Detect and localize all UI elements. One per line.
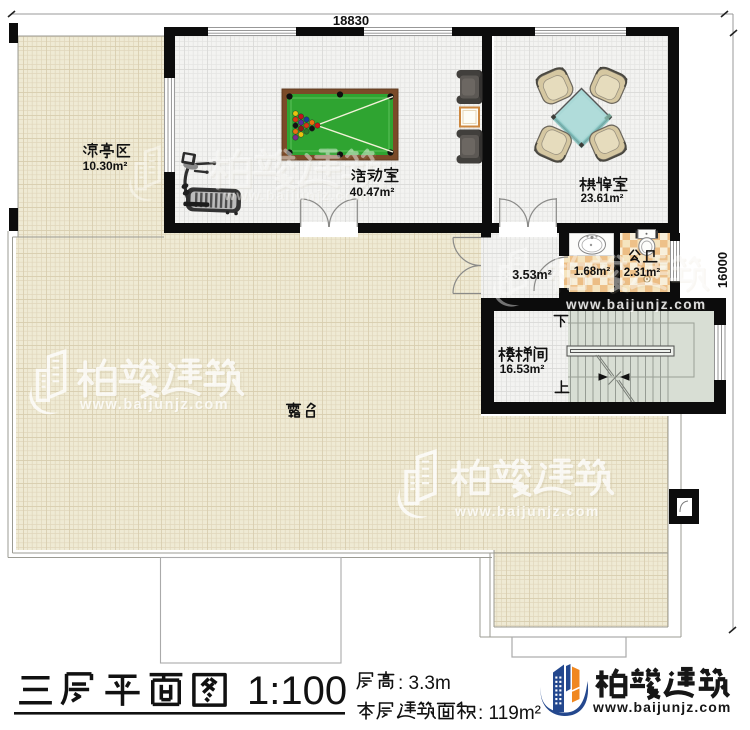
svg-text:16000: 16000	[715, 252, 730, 288]
svg-text:16.53m²: 16.53m²	[500, 362, 545, 376]
svg-text:23.61m²: 23.61m²	[581, 193, 624, 205]
svg-text:1.68m²: 1.68m²	[574, 266, 611, 278]
svg-text:: 3.3m: : 3.3m	[398, 673, 451, 694]
svg-text:2.31m²: 2.31m²	[624, 267, 661, 279]
svg-text:www.baijunjz.com: www.baijunjz.com	[223, 187, 369, 203]
svg-text:www.baijunjz.com: www.baijunjz.com	[79, 397, 229, 413]
svg-text:www.baijunjz.com: www.baijunjz.com	[454, 503, 600, 519]
svg-text:1:100: 1:100	[247, 669, 347, 713]
svg-text:www.baijunjz.com: www.baijunjz.com	[565, 297, 707, 312]
svg-text:10.30m²: 10.30m²	[83, 159, 128, 173]
svg-text:40.47m²: 40.47m²	[350, 185, 395, 199]
svg-text:18830: 18830	[333, 13, 369, 28]
svg-text:3.53m²: 3.53m²	[512, 268, 552, 282]
svg-text:: 119m²: : 119m²	[478, 703, 541, 724]
svg-text:www.baijunjz.com: www.baijunjz.com	[592, 699, 731, 715]
